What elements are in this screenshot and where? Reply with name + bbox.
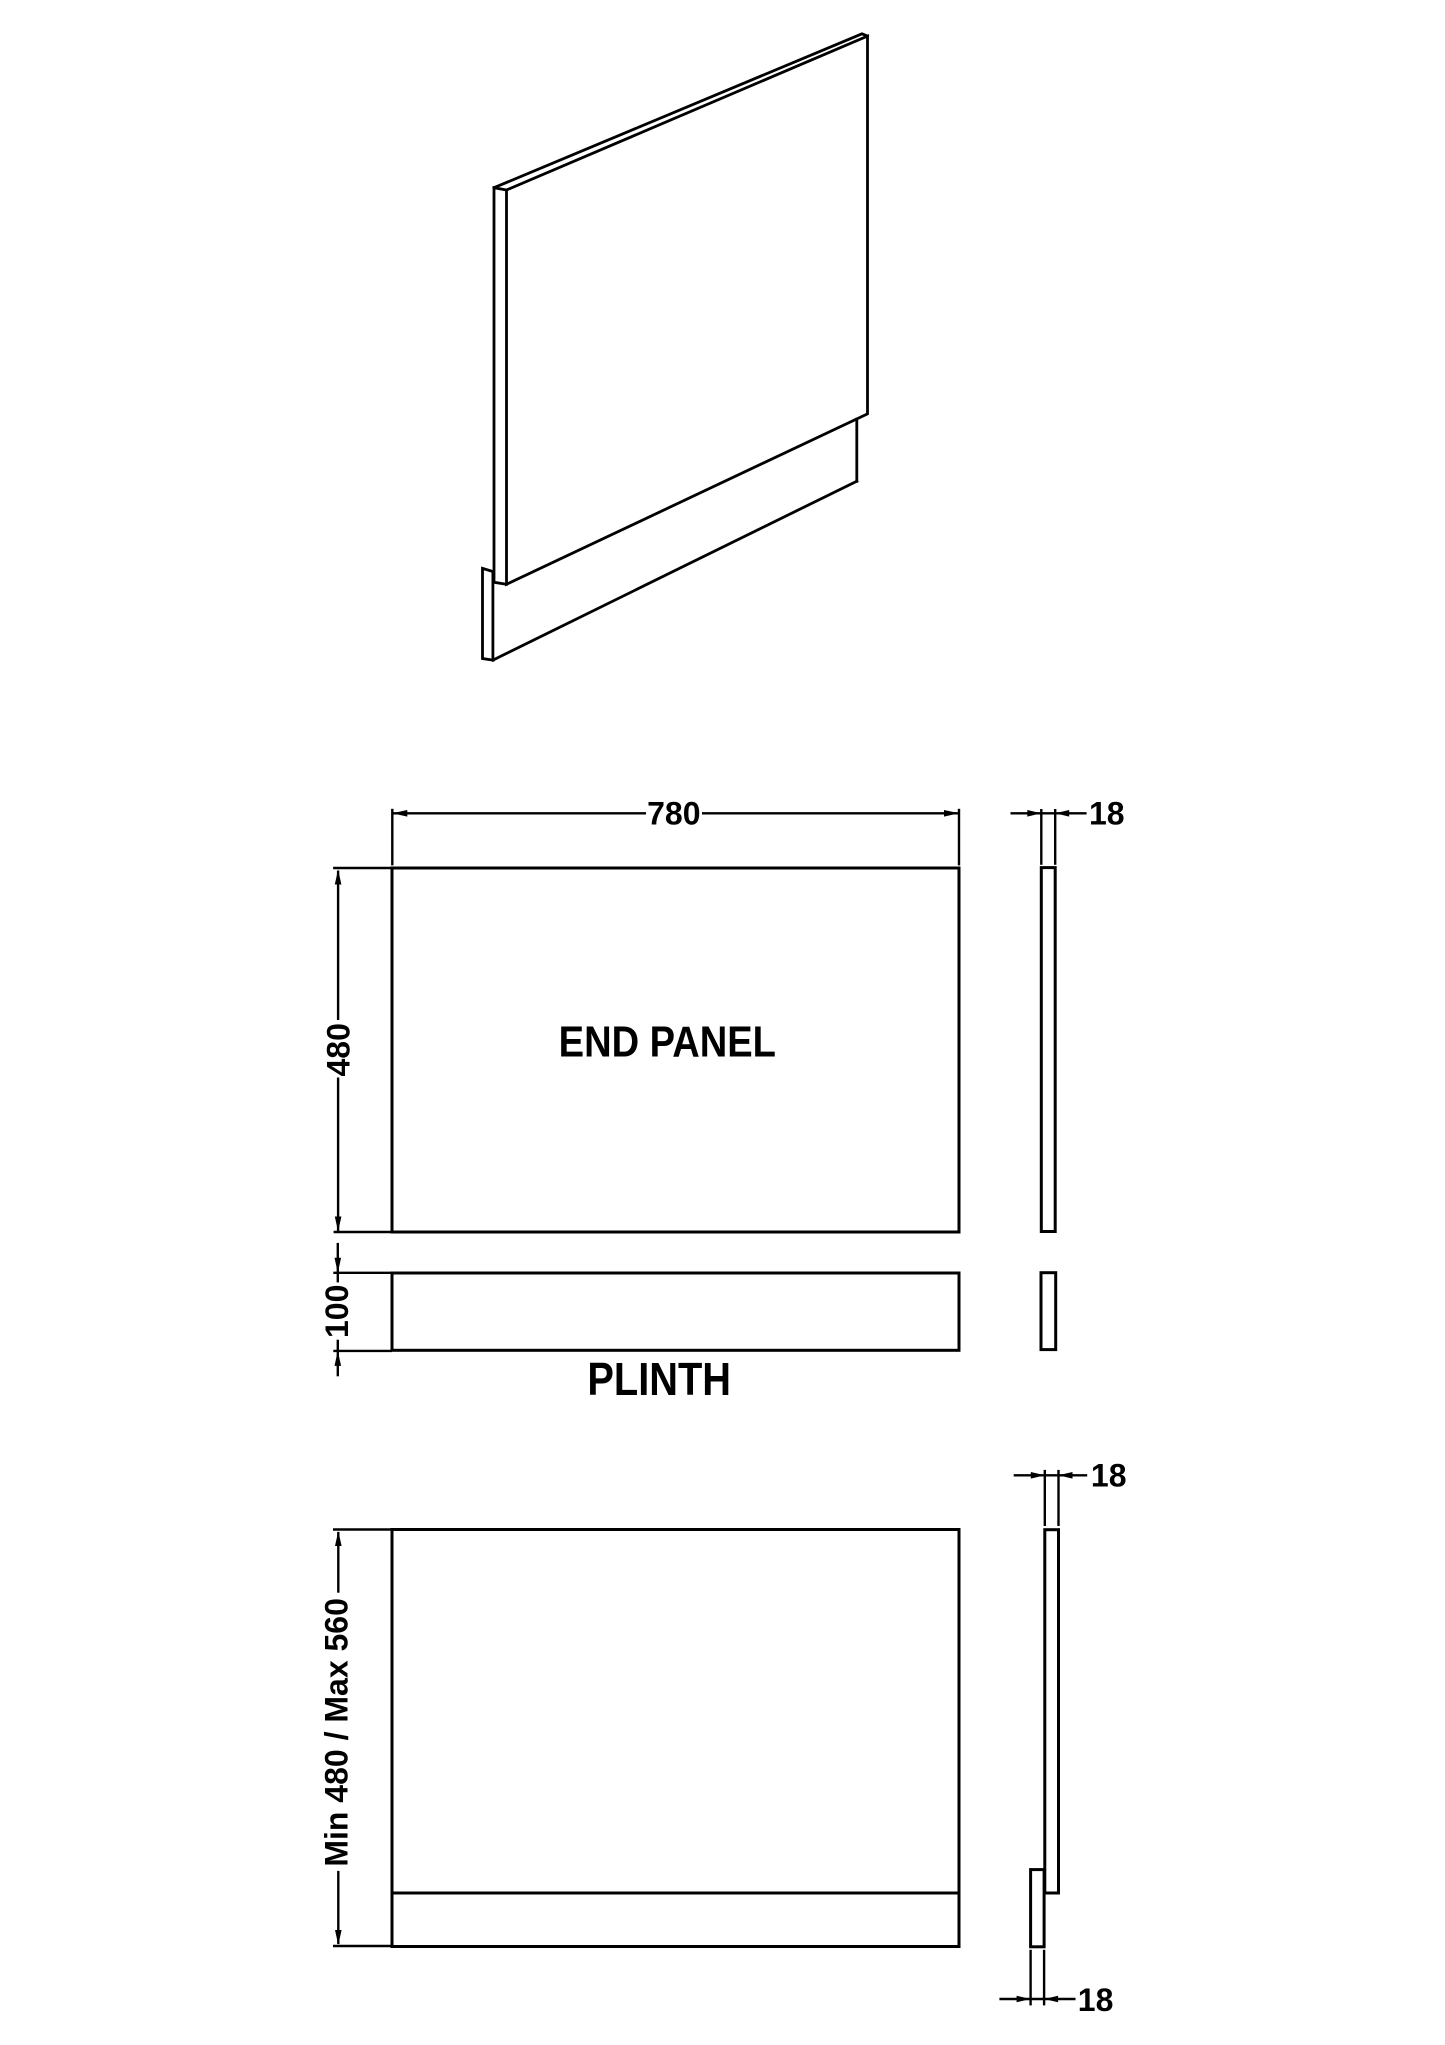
svg-text:PLINTH: PLINTH	[587, 1354, 731, 1405]
svg-text:END PANEL: END PANEL	[559, 1017, 776, 1066]
svg-text:100: 100	[319, 1285, 355, 1338]
svg-text:18: 18	[1078, 1982, 1114, 2018]
svg-text:18: 18	[1091, 1457, 1127, 1493]
svg-text:Min 480 / Max 560: Min 480 / Max 560	[318, 1598, 354, 1867]
svg-text:18: 18	[1089, 796, 1125, 832]
svg-text:780: 780	[647, 796, 700, 832]
svg-text:480: 480	[320, 1023, 356, 1076]
